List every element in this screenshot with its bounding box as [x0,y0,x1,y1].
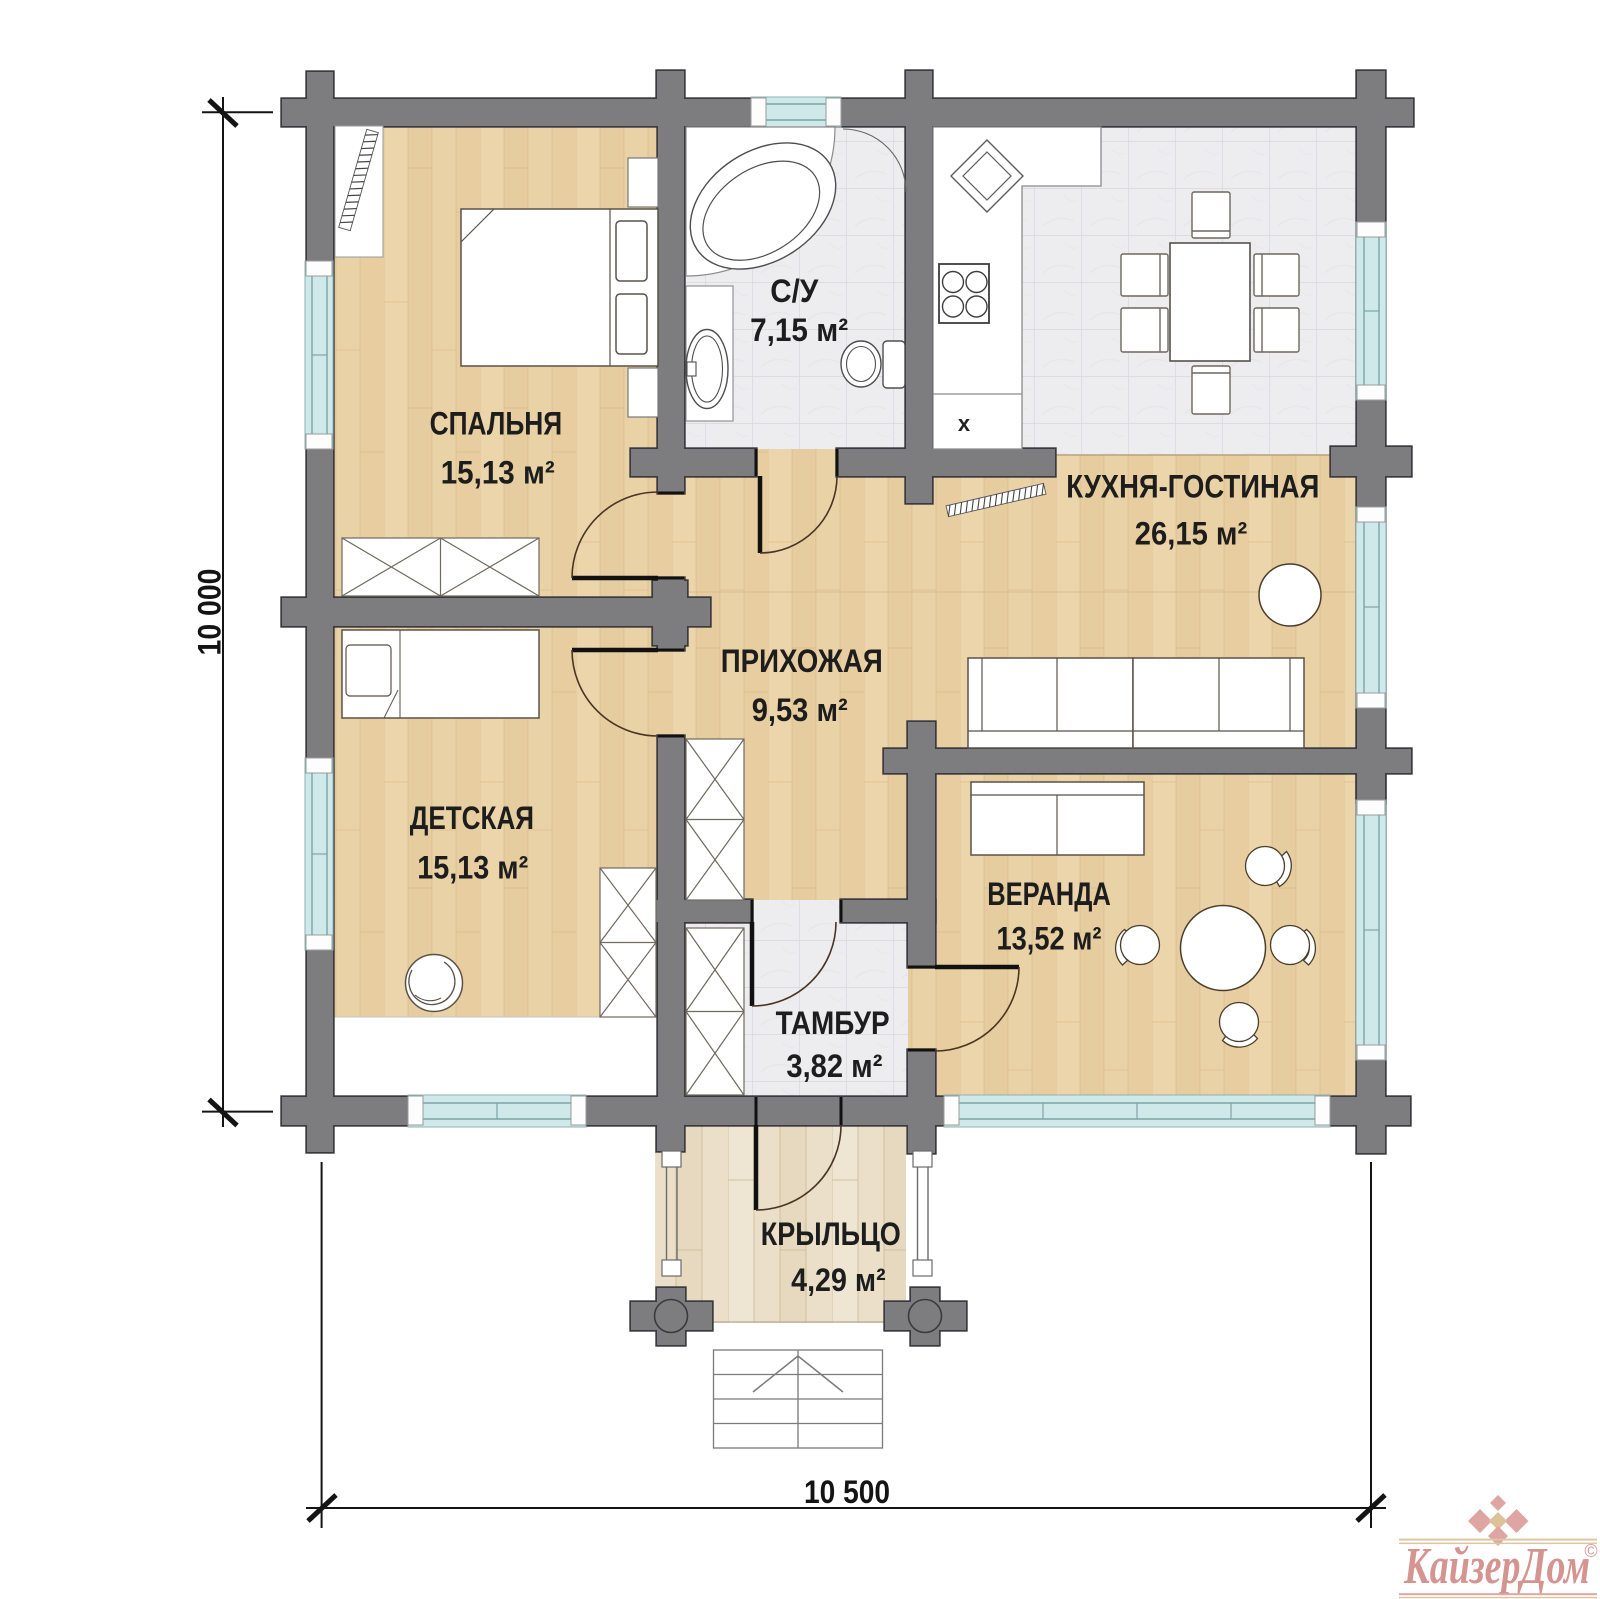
svg-text:10 500: 10 500 [804,1474,890,1510]
svg-text:10 000: 10 000 [192,569,228,656]
svg-text:КУХНЯ-ГОСТИНАЯ: КУХНЯ-ГОСТИНАЯ [1066,469,1319,505]
svg-text:ВЕРАНДА: ВЕРАНДА [987,876,1111,912]
svg-text:4,29 м²: 4,29 м² [791,1262,886,1298]
svg-text:СПАЛЬНЯ: СПАЛЬНЯ [430,406,563,442]
svg-text:КРЫЛЬЦО: КРЫЛЬЦО [761,1216,901,1252]
svg-text:ТАМБУР: ТАМБУР [776,1005,890,1041]
svg-text:©: © [1584,1541,1597,1561]
svg-text:26,15 м²: 26,15 м² [1135,516,1248,552]
svg-text:ДЕТСКАЯ: ДЕТСКАЯ [410,800,534,836]
svg-text:15,13 м²: 15,13 м² [441,455,555,491]
svg-text:7,15 м²: 7,15 м² [750,312,848,348]
svg-text:3,82 м²: 3,82 м² [786,1048,882,1084]
svg-text:13,52 м²: 13,52 м² [997,921,1102,957]
svg-text:КайзерДом: КайзерДом [1403,1538,1590,1595]
svg-text:9,53 м²: 9,53 м² [752,692,848,728]
svg-text:15,13 м²: 15,13 м² [417,850,528,886]
svg-text:С/У: С/У [770,273,819,309]
svg-text:x: x [958,411,971,436]
svg-text:ПРИХОЖАЯ: ПРИХОЖАЯ [721,643,883,679]
